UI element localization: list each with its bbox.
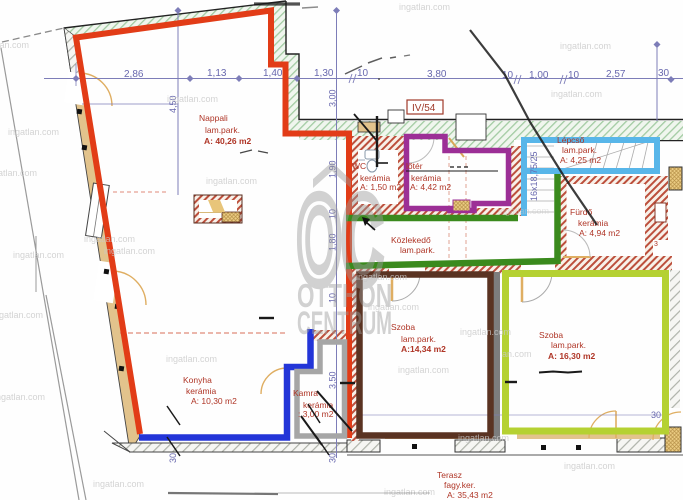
svg-text:Szoba: Szoba — [391, 322, 415, 332]
svg-text:1,13: 1,13 — [207, 68, 227, 79]
svg-text:lam.park.: lam.park. — [562, 145, 597, 155]
svg-text:IV/54: IV/54 — [412, 103, 436, 114]
svg-text:30: 30 — [651, 410, 661, 420]
svg-text:2,86: 2,86 — [124, 69, 144, 80]
svg-text:Terasz: Terasz — [437, 470, 462, 480]
svg-text:3: 3 — [654, 241, 658, 248]
svg-text:ingatlan.com: ingatlan.com — [0, 168, 37, 178]
svg-text:10: 10 — [357, 68, 369, 79]
svg-text:Konyha: Konyha — [183, 375, 212, 385]
svg-text:an.com: an.com — [502, 349, 532, 359]
svg-text:3,00: 3,00 — [328, 89, 338, 107]
svg-text:ingatlan.com: ingatlan.com — [8, 127, 59, 137]
svg-text:lőtér: lőtér — [406, 161, 423, 171]
svg-text:A: 10,30 m2: A: 10,30 m2 — [191, 396, 237, 406]
svg-text:ingatlan.com: ingatlan.com — [166, 354, 217, 364]
svg-text:Kamra: Kamra — [293, 388, 318, 398]
svg-text:Szoba: Szoba — [539, 330, 563, 340]
svg-text:30: 30 — [658, 68, 670, 79]
svg-text:lam.park.: lam.park. — [205, 125, 240, 135]
svg-text:A: 40,26 m2: A: 40,26 m2 — [204, 136, 252, 146]
svg-text:A:14,34 m2: A:14,34 m2 — [401, 344, 446, 354]
svg-text:lam.park.: lam.park. — [400, 245, 435, 255]
svg-text:16x18,75/25: 16x18,75/25 — [529, 151, 539, 201]
svg-text:A: 35,43 m2: A: 35,43 m2 — [447, 490, 493, 500]
svg-text:kerámia: kerámia — [186, 386, 217, 396]
svg-text:Lépcső: Lépcső — [557, 135, 585, 145]
svg-text:ingatlan.com: ingatlan.com — [167, 94, 218, 104]
svg-text:30: 30 — [168, 453, 178, 463]
svg-text:ingatlan.com: ingatlan.com — [551, 89, 602, 99]
svg-text:lam.park.: lam.park. — [401, 334, 436, 344]
svg-text:A: 16,30 m2: A: 16,30 m2 — [548, 351, 596, 361]
svg-text:A: 4,94 m2: A: 4,94 m2 — [579, 228, 620, 238]
svg-text:lam.park.: lam.park. — [551, 340, 586, 350]
svg-text:ingatlan.com: ingatlan.com — [0, 40, 29, 50]
svg-text:ingatlan.com: ingatlan.com — [560, 41, 611, 51]
svg-text:3,50: 3,50 — [328, 371, 338, 389]
svg-text:1,30: 1,30 — [314, 68, 334, 79]
svg-text:ingatlan.com: ingatlan.com — [206, 176, 257, 186]
svg-text:fagy.ker.: fagy.ker. — [444, 480, 476, 490]
svg-text:A: 4,25 m2: A: 4,25 m2 — [560, 155, 601, 165]
svg-text:ingatlan.com: ingatlan.com — [368, 302, 419, 312]
svg-text:Közlekedő: Közlekedő — [391, 235, 431, 245]
svg-text:2,57: 2,57 — [606, 69, 626, 80]
svg-text:ingatlan.com: ingatlan.com — [498, 206, 549, 216]
svg-text:10: 10 — [568, 70, 580, 81]
svg-text:ingatlan.com: ingatlan.com — [398, 365, 449, 375]
svg-text:ingatlan.com: ingatlan.com — [384, 487, 435, 497]
svg-text:1,40: 1,40 — [263, 68, 283, 79]
svg-text:1,00: 1,00 — [529, 70, 549, 81]
svg-text:ingatlan.com: ingatlan.com — [564, 461, 615, 471]
svg-text:ingatlan.com: ingatlan.com — [93, 479, 144, 489]
svg-text:ingatlan.com: ingatlan.com — [0, 392, 45, 402]
svg-text:ingatlan.com: ingatlan.com — [399, 2, 450, 12]
svg-text:ingatlan.com: ingatlan.com — [0, 310, 43, 320]
svg-text:3,80: 3,80 — [427, 69, 447, 80]
svg-text:ingatlan.com: ingatlan.com — [13, 250, 64, 260]
svg-text:ingatlan.com: ingatlan.com — [104, 246, 155, 256]
svg-text:Nappali: Nappali — [199, 113, 228, 123]
svg-text:A: 4,42 m2: A: 4,42 m2 — [410, 182, 451, 192]
svg-text:ingatlan.com: ingatlan.com — [458, 433, 509, 443]
svg-text:ingatlan.com: ingatlan.com — [356, 272, 407, 282]
svg-text:ingatlan.com: ingatlan.com — [84, 234, 135, 244]
svg-text:ingatlan.com: ingatlan.com — [460, 327, 511, 337]
